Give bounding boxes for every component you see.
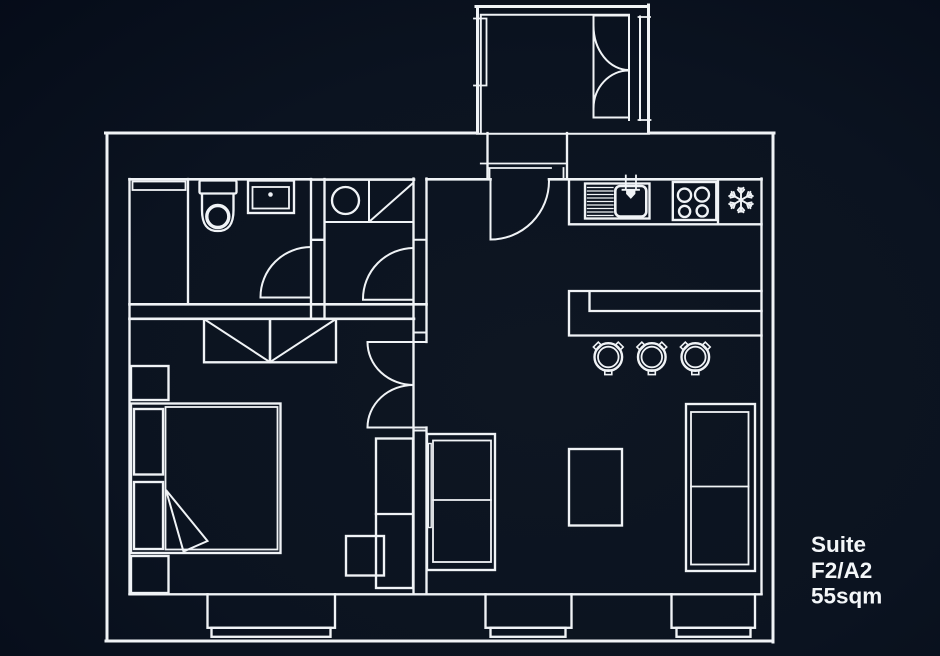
svg-text:55sqm: 55sqm — [811, 584, 882, 609]
svg-text:F2/A2: F2/A2 — [811, 558, 872, 583]
svg-text:Suite: Suite — [811, 532, 866, 557]
